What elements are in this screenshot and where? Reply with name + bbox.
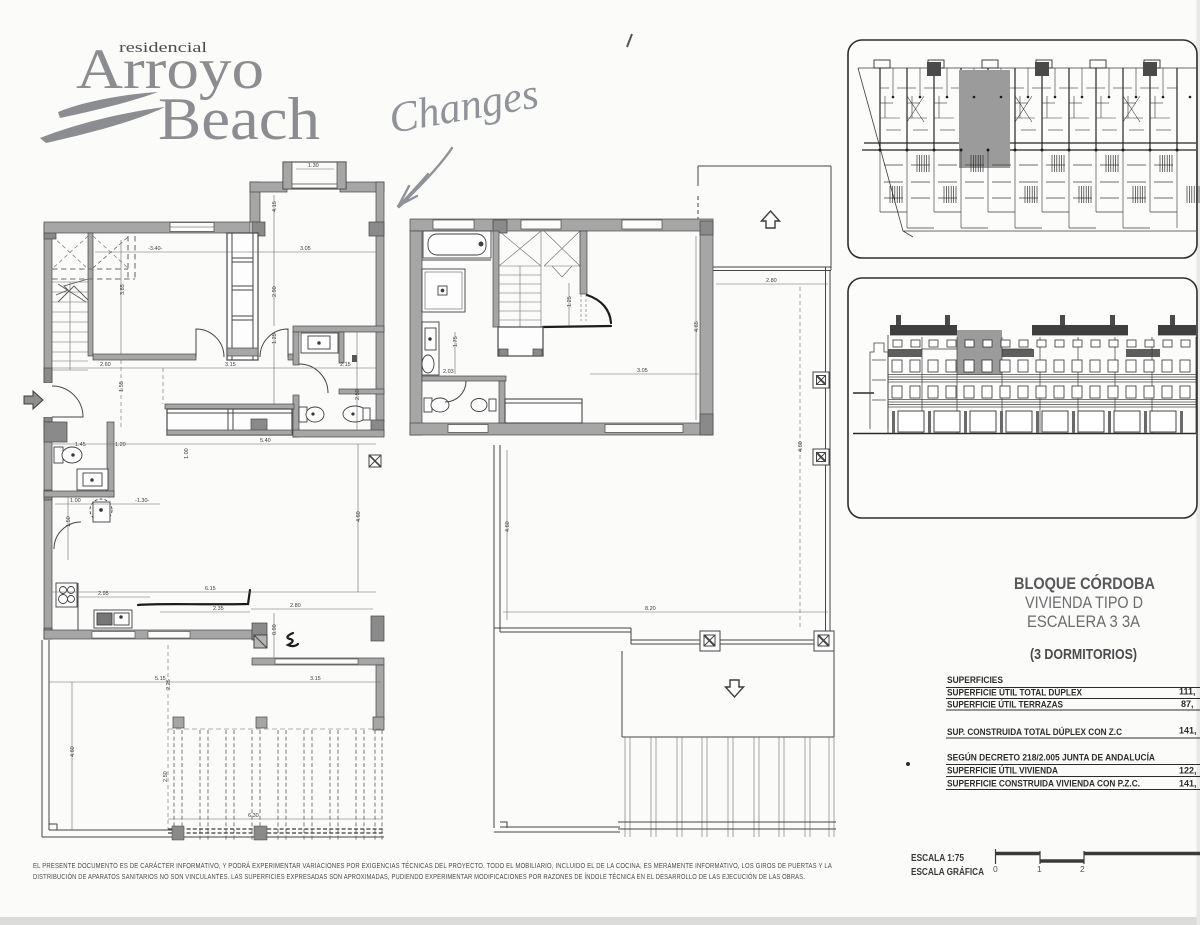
svg-text:6.30: 6.30 bbox=[248, 813, 259, 819]
svg-text:SUPERFICIE CONSTRUIDA VIVIENDA: SUPERFICIE CONSTRUIDA VIVIENDA CON P.Z.C… bbox=[947, 779, 1140, 789]
svg-text:3.05: 3.05 bbox=[300, 246, 311, 252]
svg-text:SUPERFICIE ÚTIL TERRAZAS: SUPERFICIE ÚTIL TERRAZAS bbox=[947, 699, 1063, 710]
svg-text:122,: 122, bbox=[1179, 766, 1197, 776]
svg-text:ESCALERA 3 3A: ESCALERA 3 3A bbox=[1027, 612, 1141, 631]
svg-text:4.60: 4.60 bbox=[356, 511, 362, 522]
svg-text:141,: 141, bbox=[1179, 779, 1197, 789]
svg-text:111,: 111, bbox=[1179, 687, 1196, 697]
svg-text:SUPERFICIE ÚTIL VIVIENDA: SUPERFICIE ÚTIL VIVIENDA bbox=[947, 765, 1058, 776]
svg-text:-3.40-: -3.40- bbox=[148, 246, 163, 252]
svg-text:1.25: 1.25 bbox=[272, 333, 278, 344]
svg-text:1.55: 1.55 bbox=[119, 381, 125, 392]
svg-text:3.15: 3.15 bbox=[310, 676, 321, 682]
svg-text:4.60: 4.60 bbox=[798, 441, 804, 452]
svg-text:0.90: 0.90 bbox=[272, 624, 278, 635]
svg-text:BLOQUE CÓRDOBA: BLOQUE CÓRDOBA bbox=[1014, 574, 1155, 593]
svg-text:SUP. CONSTRUIDA TOTAL DÚPLEX C: SUP. CONSTRUIDA TOTAL DÚPLEX CON Z.C bbox=[947, 726, 1122, 737]
svg-text:5.40: 5.40 bbox=[260, 438, 271, 444]
svg-text:2.25: 2.25 bbox=[166, 679, 172, 690]
svg-text:8.20: 8.20 bbox=[645, 606, 656, 612]
svg-text:2.03: 2.03 bbox=[443, 369, 454, 375]
svg-text:1.00: 1.00 bbox=[70, 498, 81, 504]
svg-text:Changes: Changes bbox=[386, 70, 542, 142]
svg-text:1.30: 1.30 bbox=[308, 163, 319, 169]
svg-text:4.60: 4.60 bbox=[505, 521, 511, 532]
svg-text:ESCALA 1:75: ESCALA 1:75 bbox=[911, 853, 964, 864]
svg-text:1: 1 bbox=[1037, 864, 1042, 874]
svg-text:3.05: 3.05 bbox=[637, 368, 648, 374]
svg-text:1.20: 1.20 bbox=[115, 442, 126, 448]
svg-text:1.75: 1.75 bbox=[453, 336, 459, 347]
svg-text:87,: 87, bbox=[1181, 699, 1194, 709]
svg-text:1.50: 1.50 bbox=[66, 516, 72, 527]
svg-text:3.15: 3.15 bbox=[225, 362, 236, 368]
svg-text:SUPERFICIE ÚTIL TOTAL DÚPLEX: SUPERFICIE ÚTIL TOTAL DÚPLEX bbox=[947, 687, 1082, 698]
svg-text:4.65: 4.65 bbox=[694, 321, 700, 332]
svg-text:ESCALA GRÁFICA: ESCALA GRÁFICA bbox=[911, 865, 984, 878]
svg-text:2.50: 2.50 bbox=[163, 771, 169, 782]
svg-text:DISTRIBUCIÓN DE APARATOS SANIT: DISTRIBUCIÓN DE APARATOS SANITARIOS NO S… bbox=[33, 872, 805, 881]
svg-text:2.35: 2.35 bbox=[213, 606, 224, 612]
svg-text:2: 2 bbox=[1080, 864, 1085, 874]
svg-text:(3 DORMITORIOS): (3 DORMITORIOS) bbox=[1030, 646, 1137, 663]
svg-text:4.60: 4.60 bbox=[70, 746, 76, 757]
svg-text:5.15: 5.15 bbox=[155, 676, 166, 682]
svg-text:1.45: 1.45 bbox=[75, 442, 86, 448]
svg-text:1.25: 1.25 bbox=[567, 296, 573, 307]
svg-text:4.15: 4.15 bbox=[272, 201, 278, 212]
svg-text:Beach: Beach bbox=[158, 86, 320, 152]
svg-text:6.15: 6.15 bbox=[205, 586, 216, 592]
svg-text:EL PRESENTE DOCUMENTO ES DE CA: EL PRESENTE DOCUMENTO ES DE CARÁCTER INF… bbox=[33, 861, 832, 870]
svg-text:2.80: 2.80 bbox=[290, 603, 301, 609]
svg-text:2.15: 2.15 bbox=[340, 362, 351, 368]
svg-text:3.85: 3.85 bbox=[120, 284, 126, 295]
svg-text:VIVIENDA TIPO D: VIVIENDA TIPO D bbox=[1025, 593, 1143, 612]
svg-text:141,: 141, bbox=[1179, 726, 1197, 736]
svg-text:2.60: 2.60 bbox=[100, 362, 111, 368]
svg-text:2.50: 2.50 bbox=[355, 389, 361, 400]
svg-text:-1.30-: -1.30- bbox=[135, 498, 150, 504]
svg-text:0: 0 bbox=[993, 864, 998, 874]
svg-text:2.90: 2.90 bbox=[272, 286, 278, 297]
svg-text:SEGÚN DECRETO 218/2.005 JUNTA: SEGÚN DECRETO 218/2.005 JUNTA DE ANDALUC… bbox=[947, 752, 1155, 764]
svg-text:SUPERFICIES: SUPERFICIES bbox=[947, 675, 1003, 685]
svg-text:2.80: 2.80 bbox=[766, 278, 777, 284]
svg-text:1.00: 1.00 bbox=[184, 448, 190, 459]
